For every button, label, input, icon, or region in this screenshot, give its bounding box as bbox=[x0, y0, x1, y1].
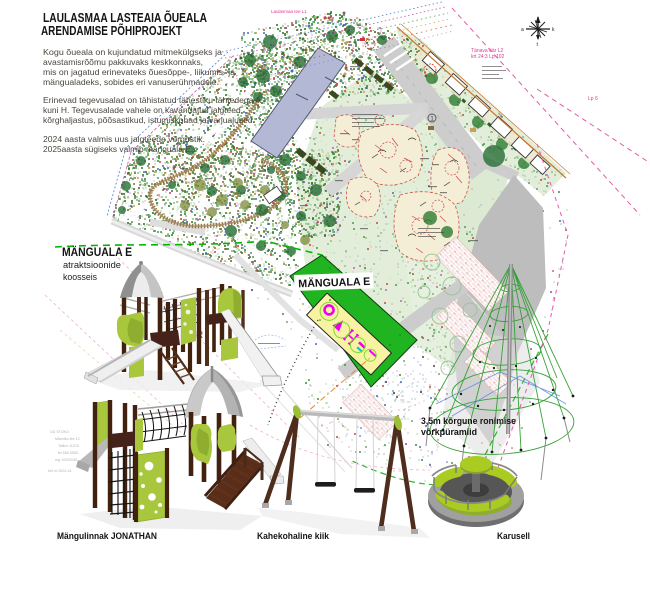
svg-text:koosseis: koosseis bbox=[63, 272, 97, 282]
svg-text:Kogu õueala on kujundatud mitm: Kogu õueala on kujundatud mitmekülgseks … bbox=[43, 47, 222, 57]
svg-text:atraktsioonide: atraktsioonide bbox=[63, 260, 121, 270]
svg-text:Kahekohaline kiik: Kahekohaline kiik bbox=[257, 531, 330, 542]
svg-text:kõrghaljastus, põõsastikud, i: kõrghaljastus, põõsastikud, istumiskohad… bbox=[43, 115, 255, 125]
svg-text:mis on jagatud erinevateks õue: mis on jagatud erinevateks õuesõppe-, li… bbox=[43, 67, 235, 77]
svg-text:3,5m kõrgune ronimise: 3,5m kõrgune ronimise bbox=[421, 416, 516, 427]
svg-text:avastamisrõõmu pakkuvaks keskk: avastamisrõõmu pakkuvaks keskkonnaks, bbox=[43, 57, 203, 67]
svg-text:2024 aasta valmis uus jalgtee: 2024 aasta valmis uus jalgteede võrgusti… bbox=[43, 134, 205, 144]
svg-text:ARENDAMISE PÕHIPROJEKT: ARENDAMISE PÕHIPROJEKT bbox=[41, 23, 182, 38]
svg-text:MÄNGUALA E: MÄNGUALA E bbox=[62, 246, 132, 259]
svg-text:Erinevad tegevusalad on tähist: Erinevad tegevusalad on tähistatud tähes… bbox=[43, 95, 261, 105]
svg-text:Mängulinnak JONATHAN: Mängulinnak JONATHAN bbox=[57, 531, 157, 542]
svg-text:1: 1 bbox=[430, 116, 434, 123]
svg-text:tel 655 5555: tel 655 5555 bbox=[58, 451, 78, 455]
svg-text:k: k bbox=[552, 27, 555, 33]
svg-text:Karusell: Karusell bbox=[497, 531, 530, 542]
svg-text:reg 10203040: reg 10203040 bbox=[55, 458, 77, 462]
svg-text:Lp 6: Lp 6 bbox=[588, 96, 598, 102]
svg-text:Tallinn 11215: Tallinn 11215 bbox=[58, 444, 79, 448]
svg-text:krt 24:3 Lp 102: krt 24:3 Lp 102 bbox=[471, 54, 505, 60]
svg-text:MÄNGUALA E: MÄNGUALA E bbox=[298, 275, 370, 291]
svg-text:LAULASMAA LASTEAIA ÕUEALA: LAULASMAA LASTEAIA ÕUEALA bbox=[43, 10, 207, 25]
svg-text:töö nr 2023-14: töö nr 2023-14 bbox=[48, 469, 71, 473]
svg-text:a: a bbox=[521, 27, 524, 33]
svg-text:kuni H. Tegevusalade vahele on: kuni H. Tegevusalade vahele on kavandatu… bbox=[43, 105, 243, 115]
svg-text:Männiku tee 12: Männiku tee 12 bbox=[55, 437, 80, 441]
svg-text:2025aasta sügiseks valmib mäng: 2025aasta sügiseks valmib mänguala E. bbox=[43, 144, 193, 154]
svg-text:t: t bbox=[537, 42, 539, 48]
svg-text:võrkpüramiid: võrkpüramiid bbox=[421, 427, 477, 438]
svg-text:OÜ STUKO: OÜ STUKO bbox=[50, 430, 69, 434]
svg-text:mängualadeks, sobides eri vanu: mängualadeks, sobides eri vanuserühmadel… bbox=[43, 77, 219, 87]
svg-text:Laulasmaa tee L1: Laulasmaa tee L1 bbox=[271, 9, 307, 14]
